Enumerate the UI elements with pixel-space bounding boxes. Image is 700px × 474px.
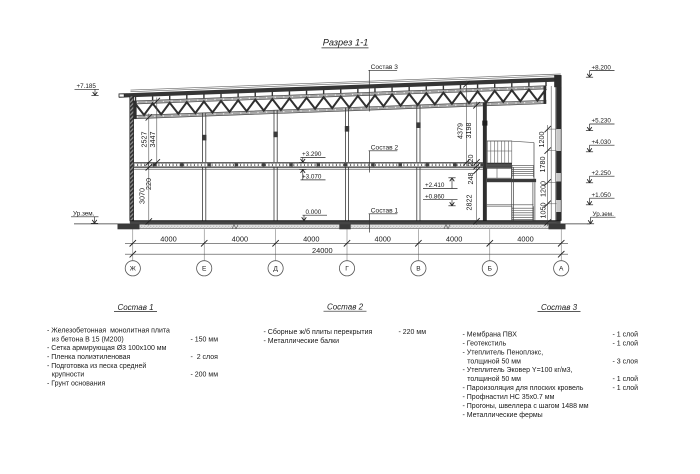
svg-text:толщиной 50 мм: толщиной 50 мм xyxy=(467,357,521,365)
svg-text:- 220 мм: - 220 мм xyxy=(399,329,427,336)
svg-text:- Утеплитель Пеноплэкс,: - Утеплитель Пеноплэкс, xyxy=(463,349,544,356)
svg-text:- 1 слой: - 1 слой xyxy=(613,375,639,383)
svg-text:4000: 4000 xyxy=(446,234,462,243)
svg-text:4000: 4000 xyxy=(160,234,176,243)
svg-text:- 150 мм: - 150 мм xyxy=(191,336,219,343)
svg-text:- Профнастил НС 35х0.7 мм: - Профнастил НС 35х0.7 мм xyxy=(463,394,555,401)
svg-text:Состав 2: Состав 2 xyxy=(371,144,399,151)
svg-text:- Сборные ж/б плиты перекрытия: - Сборные ж/б плиты перекрытия xyxy=(264,328,373,336)
svg-text:крупности: крупности xyxy=(52,372,85,379)
svg-text:Д: Д xyxy=(273,266,278,273)
svg-text:Г: Г xyxy=(345,266,349,273)
svg-text:из бетона В 15 (М200): из бетона В 15 (М200) xyxy=(52,335,124,343)
svg-text:+5.230: +5.230 xyxy=(592,118,612,125)
svg-text:- Геотекстиль: - Геотекстиль xyxy=(463,340,507,347)
svg-text:- Мембрана ПВХ: - Мембрана ПВХ xyxy=(463,331,518,339)
svg-text:- Пароизоляция для плоских кро: - Пароизоляция для плоских кровель xyxy=(463,385,584,392)
svg-text:Состав 2: Состав 2 xyxy=(327,303,364,312)
svg-text:2822: 2822 xyxy=(465,195,474,211)
svg-text:24000: 24000 xyxy=(312,246,333,255)
svg-text:4000: 4000 xyxy=(232,234,248,243)
svg-text:Состав 3: Состав 3 xyxy=(371,64,399,71)
svg-text:Б: Б xyxy=(488,266,492,273)
svg-text:- Железобетонная монолитная п: - Железобетонная монолитная плита xyxy=(47,326,170,334)
svg-text:1200: 1200 xyxy=(538,181,547,197)
svg-text:В: В xyxy=(416,266,421,273)
svg-text:А: А xyxy=(559,266,564,273)
svg-text:- 1 слой: - 1 слой xyxy=(613,339,639,347)
svg-text:- Металлические балки: - Металлические балки xyxy=(264,337,340,345)
svg-text:- 3 слоя: - 3 слоя xyxy=(613,358,639,365)
svg-text:Разрез 1-1: Разрез 1-1 xyxy=(323,38,369,48)
svg-text:- Грунт основания: - Грунт основания xyxy=(47,381,105,388)
svg-text:- 1 слой: - 1 слой xyxy=(613,384,639,392)
svg-text:- 2 слоя: - 2 слоя xyxy=(191,354,219,361)
svg-text:248: 248 xyxy=(466,173,475,185)
svg-text:4000: 4000 xyxy=(517,234,533,243)
svg-text:- 1 слой: - 1 слой xyxy=(613,331,639,339)
svg-text:Состав 1: Состав 1 xyxy=(117,303,153,312)
svg-text:- Утеплитель Эковер Y=100 кг/м: - Утеплитель Эковер Y=100 кг/м3, xyxy=(463,367,573,374)
svg-text:Ж: Ж xyxy=(130,266,136,273)
svg-text:1200: 1200 xyxy=(537,132,546,148)
svg-text:Состав 1: Состав 1 xyxy=(371,207,399,214)
svg-text:Е: Е xyxy=(202,266,207,273)
svg-text:3198: 3198 xyxy=(464,123,473,139)
svg-text:- 200 мм: - 200 мм xyxy=(191,372,219,379)
svg-text:- Пленка полиэтиленовая: - Пленка полиэтиленовая xyxy=(47,354,131,361)
svg-text:толщиной 50 мм: толщиной 50 мм xyxy=(467,375,521,383)
svg-text:220: 220 xyxy=(466,155,475,167)
svg-text:1780: 1780 xyxy=(538,157,547,173)
svg-text:Состав 3: Состав 3 xyxy=(541,303,578,312)
svg-text:1050: 1050 xyxy=(538,203,547,219)
svg-text:- Подготовка из песка средней: - Подготовка из песка средней xyxy=(47,362,146,370)
svg-text:- Сетка армирующая Ø3 100х100: - Сетка армирующая Ø3 100х100 мм xyxy=(47,345,167,352)
svg-text:4000: 4000 xyxy=(303,234,319,243)
svg-text:- Металлические фермы: - Металлические фермы xyxy=(463,412,543,419)
svg-text:3447: 3447 xyxy=(148,132,157,148)
svg-text:- Прогоны, швеллера с шагом 14: - Прогоны, швеллера с шагом 1488 мм xyxy=(463,403,589,410)
svg-text:+7.185: +7.185 xyxy=(77,83,97,90)
svg-text:3070: 3070 xyxy=(137,188,146,204)
svg-text:4000: 4000 xyxy=(374,234,390,243)
